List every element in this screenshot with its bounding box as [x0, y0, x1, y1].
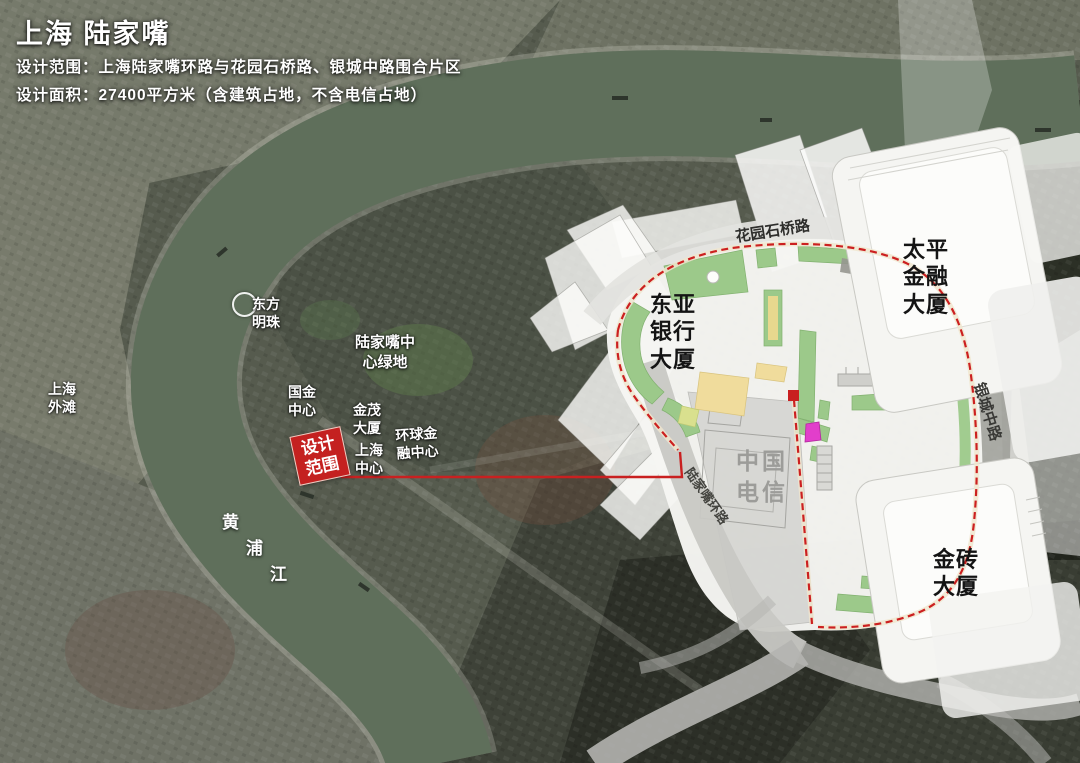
label-huangpu-char1: 黄 [222, 508, 239, 533]
title-block: 上海 陆家嘴 设计范围：上海陆家嘴环路与花园石桥路、银城中路围合片区 设计面积：… [16, 12, 462, 108]
green-patch [756, 248, 777, 268]
green-patch [818, 400, 830, 420]
parking-comb-vertical [817, 446, 832, 490]
tower-podium [927, 580, 1080, 720]
label-gold-brick-tower: 金砖 大厦 [933, 546, 979, 601]
design-scope-tag: 设计 范围 [289, 426, 350, 486]
label-jinmao: 金茂 大厦 [353, 401, 381, 438]
label-shanghai-tower: 上海 中心 [355, 441, 383, 478]
magenta-parcel [805, 422, 821, 442]
boundary-node [788, 390, 799, 401]
label-china-telecom: 中国 电信 [736, 446, 788, 508]
label-oriental-pearl: 东方 明珠 [252, 295, 280, 332]
design-scope-line: 设计范围：上海陆家嘴环路与花园石桥路、银城中路围合片区 [16, 57, 462, 79]
label-ifc: 国金 中心 [288, 383, 316, 420]
label-swfc: 环球金 融中心 [395, 424, 439, 464]
yellow-green-parcel [678, 406, 699, 427]
design-area-line: 设计面积：27400平方米（含建筑占地，不含电信占地） [16, 85, 462, 107]
fountain-circle [707, 271, 719, 283]
label-taiping-finance-tower: 太平 金融 大厦 [903, 236, 949, 318]
green-patch [798, 330, 816, 422]
page-title: 上海 陆家嘴 [16, 12, 462, 51]
label-huangpu-char2: 浦 [246, 534, 263, 559]
label-huangpu-char3: 江 [270, 560, 287, 585]
lujiazui-map-slide: 上海 陆家嘴 设计范围：上海陆家嘴环路与花园石桥路、银城中路围合片区 设计面积：… [0, 0, 1080, 763]
label-central-green: 陆家嘴中 心绿地 [352, 333, 418, 373]
red-roof-district-south [65, 590, 235, 710]
yellow-parcel [695, 372, 749, 416]
park-patch [300, 300, 360, 340]
map-canvas [0, 0, 1080, 763]
yellow-strip [768, 296, 778, 340]
label-east-asia-bank-tower: 东亚 银行 大厦 [650, 291, 696, 373]
label-bund: 上海 外滩 [48, 380, 76, 417]
